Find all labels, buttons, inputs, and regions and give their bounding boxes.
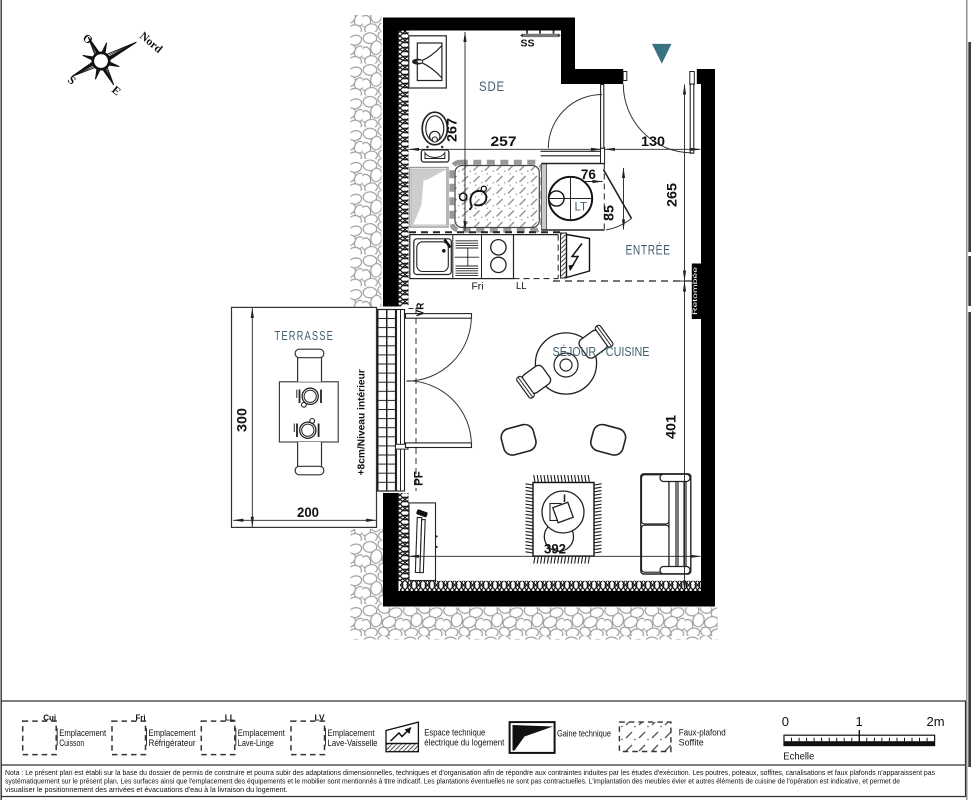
svg-text:TERRASSE: TERRASSE [275, 328, 335, 343]
svg-text:Faux-plafond: Faux-plafond [679, 728, 726, 738]
svg-text:Echelle: Echelle [783, 751, 814, 763]
svg-text:Lave-Linge: Lave-Linge [238, 738, 274, 748]
svg-text:VR: VR [416, 302, 427, 317]
svg-text:électrique du logement: électrique du logement [424, 737, 504, 747]
svg-text:300: 300 [234, 408, 249, 432]
svg-text:Cui: Cui [43, 713, 56, 723]
svg-text:Fri: Fri [472, 281, 484, 293]
svg-text:2m: 2m [927, 714, 945, 729]
svg-text:Soffite: Soffite [679, 737, 704, 747]
svg-text:PF: PF [414, 471, 426, 486]
svg-text:Réfrigérateur: Réfrigérateur [149, 738, 196, 748]
svg-text:Retombée: Retombée [692, 267, 699, 315]
svg-text:Gaine technique: Gaine technique [557, 728, 611, 738]
svg-text:+8cm/Niveau intérieur: +8cm/Niveau intérieur [357, 369, 368, 475]
svg-text:Emplacement: Emplacement [328, 728, 375, 738]
svg-text:LL: LL [516, 280, 527, 292]
svg-text:Emplacement: Emplacement [238, 728, 285, 738]
svg-text:SS: SS [521, 38, 535, 50]
svg-text:1: 1 [856, 714, 863, 729]
svg-text:LL: LL [225, 713, 235, 723]
svg-text:Emplacement: Emplacement [149, 728, 196, 738]
svg-text:Espace technique: Espace technique [424, 728, 485, 738]
svg-text:267: 267 [445, 118, 460, 142]
svg-text:130: 130 [641, 134, 665, 149]
svg-text:401: 401 [664, 414, 679, 439]
svg-text:76: 76 [581, 167, 596, 182]
svg-text:0: 0 [782, 714, 789, 729]
svg-text:ENTRÉE: ENTRÉE [626, 243, 671, 258]
svg-text:LV: LV [315, 713, 325, 723]
svg-text:200: 200 [297, 505, 319, 520]
svg-text:Fri: Fri [136, 713, 146, 723]
svg-text:265: 265 [665, 182, 680, 207]
svg-text:Lave-Vaisselle: Lave-Vaisselle [328, 738, 378, 748]
svg-text:SÉJOUR - CUISINE: SÉJOUR - CUISINE [553, 344, 650, 359]
svg-text:392: 392 [544, 542, 566, 557]
svg-text:SDE: SDE [479, 79, 505, 94]
svg-text:visualiser le positionnement d: visualiser le positionnement des arrivée… [5, 785, 288, 794]
svg-text:LT: LT [575, 202, 588, 214]
svg-text:Emplacement: Emplacement [59, 728, 106, 738]
svg-text:85: 85 [602, 204, 617, 221]
svg-text:257: 257 [491, 134, 517, 149]
svg-text:Cuisson: Cuisson [59, 738, 84, 748]
